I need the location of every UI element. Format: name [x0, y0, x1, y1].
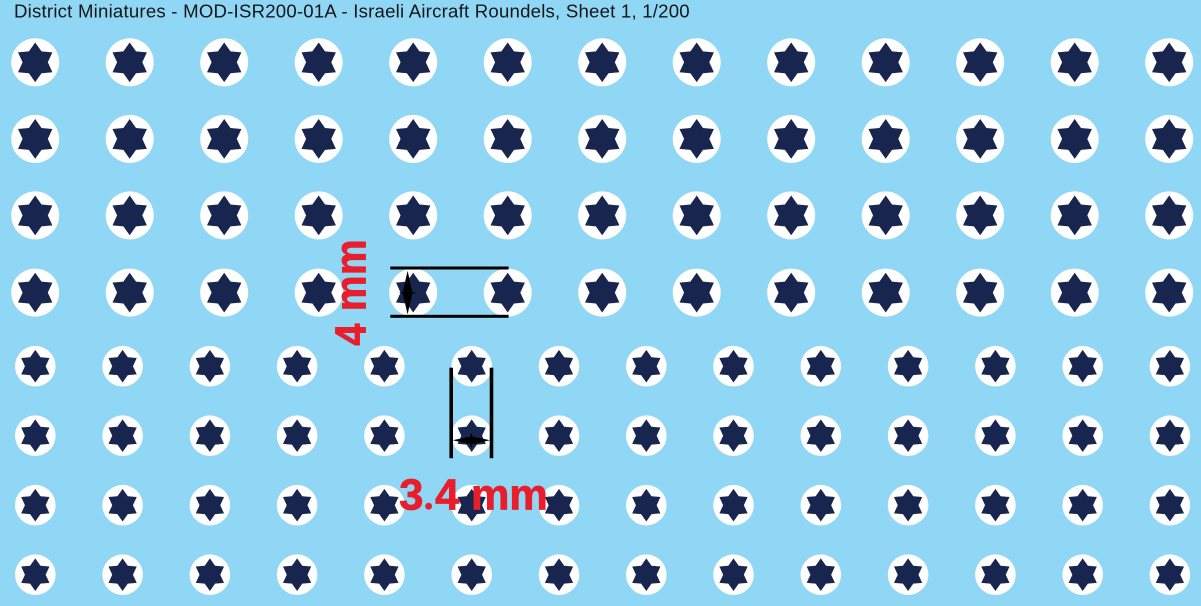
svg-text:District Miniatures - MOD-ISR2: District Miniatures - MOD-ISR200-01A - I… [14, 0, 690, 21]
svg-text:4 mm: 4 mm [326, 239, 375, 346]
svg-text:3.4 mm: 3.4 mm [399, 472, 547, 520]
